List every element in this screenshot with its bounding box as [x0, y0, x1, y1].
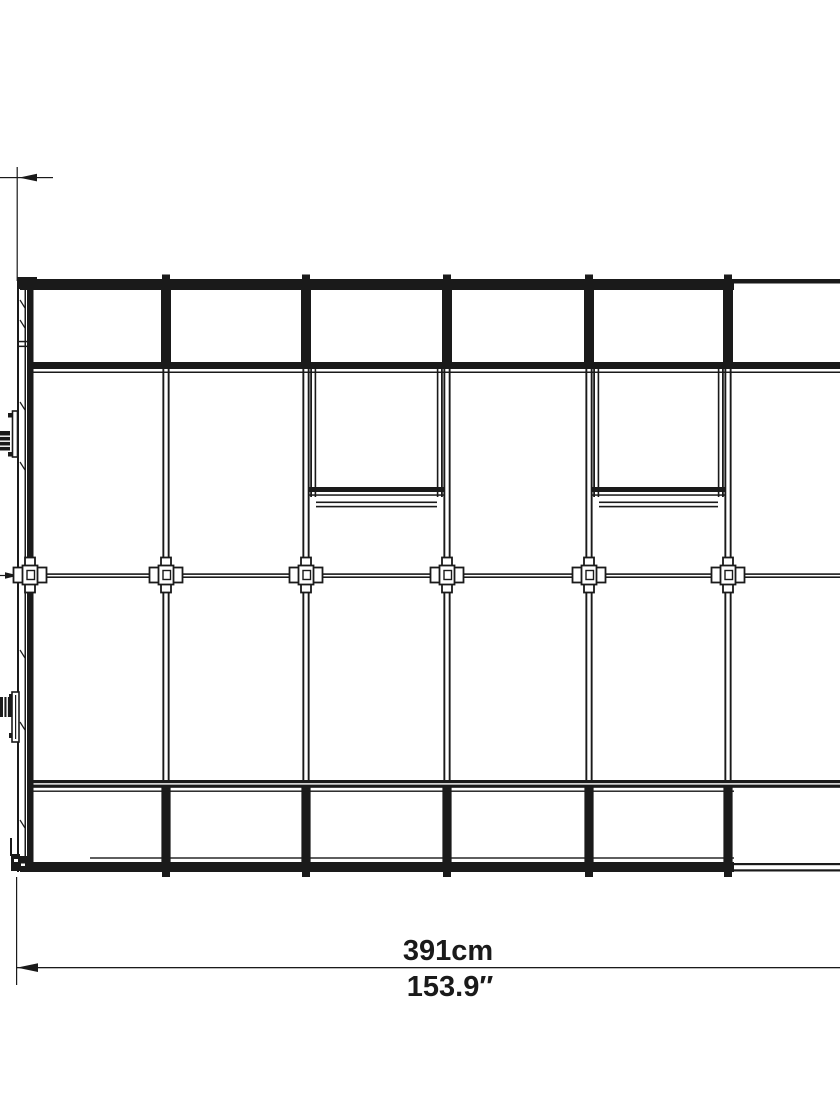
- cross-connector-4-left-flange: [431, 568, 441, 583]
- vent-window-2-bottom-rail: [591, 494, 726, 496]
- wall-tick: [20, 402, 25, 410]
- post-4-top: [584, 282, 594, 369]
- post-2-top: [301, 282, 311, 369]
- cross-connector-1-right-flange: [37, 568, 47, 583]
- foot-base: [11, 856, 29, 871]
- cross-connector-3-left-flange: [290, 568, 300, 583]
- handle-knob: [0, 697, 12, 717]
- vent-window-2-sill-line: [599, 506, 718, 508]
- wall-tick: [20, 320, 25, 328]
- post-4-bottom: [584, 787, 593, 862]
- post-1-top: [161, 282, 171, 369]
- top-beam-main: [20, 279, 734, 290]
- cross-connector-5-left-flange: [573, 568, 583, 583]
- cross-connector-2-right-flange: [173, 568, 183, 583]
- arrowhead-icon: [19, 174, 37, 182]
- vent-window-1-bottom-rail: [308, 487, 445, 492]
- top-left-dimension: [0, 167, 53, 281]
- base-rail-line: [33, 780, 840, 783]
- wall-tick: [20, 722, 25, 730]
- vent-window-2-frame: [718, 369, 720, 497]
- bottom-rail: [20, 857, 840, 877]
- cross-connector-6-left-flange: [712, 568, 722, 583]
- extension-line: [17, 167, 18, 281]
- vent-window-2-bottom-rail: [591, 487, 726, 492]
- cross-connector-2-body: [159, 566, 174, 585]
- cross-connector-6-body: [721, 566, 736, 585]
- knob-rib: [0, 436, 10, 437]
- wall-foot-bracket: [10, 838, 29, 871]
- base-rail-underline: [33, 791, 734, 792]
- cross-connector-3-right-flange: [313, 568, 323, 583]
- top-beam-right-continuation: [728, 279, 840, 284]
- vent-window-2-sill-line: [599, 502, 718, 504]
- vent-window-2-frame: [722, 369, 724, 497]
- wall-tick: [20, 300, 25, 308]
- wall-tick: [20, 462, 25, 470]
- vent-window-1-frame: [441, 369, 443, 497]
- knob-rib: [0, 446, 10, 447]
- foot-gap: [14, 859, 18, 862]
- bottom-rail-right-continuation: [728, 863, 840, 865]
- hinge-plate: [13, 411, 18, 457]
- technical-drawing-page: 391cm 153.9″: [0, 0, 840, 1120]
- wall-joint-line: [19, 346, 33, 348]
- vent-window-1-bottom-rail: [308, 494, 445, 496]
- vent-window-1-sill-line: [316, 506, 437, 508]
- post-foot: [302, 872, 310, 877]
- foot-gap: [21, 864, 25, 867]
- cross-connector-6-right-flange: [735, 568, 745, 583]
- dimension-imperial-label: 153.9″: [407, 971, 494, 1003]
- post-3-bottom: [442, 787, 451, 862]
- post-foot: [443, 872, 451, 877]
- bottom-rail-right-continuation: [728, 869, 840, 871]
- cross-connector-4-right-flange: [454, 568, 464, 583]
- cross-connector-5-right-flange: [596, 568, 606, 583]
- wall-joint-line: [19, 341, 33, 343]
- arrowhead-icon: [17, 963, 38, 972]
- eave-rail-main: [33, 362, 840, 369]
- post-foot: [724, 872, 732, 877]
- dimension-line: [16, 967, 840, 968]
- vent-windows: [308, 369, 726, 507]
- cross-connector-1-body: [23, 566, 38, 585]
- door-hinge: [0, 411, 18, 457]
- post-foot: [585, 872, 593, 877]
- bottom-rail-overline: [90, 857, 734, 858]
- bottom-dimension: 391cm 153.9″: [16, 877, 840, 1003]
- knob-rib: [7, 697, 8, 717]
- greenhouse-wall-elevation-drawing: 391cm 153.9″: [0, 0, 840, 1120]
- cross-connector-5-body: [582, 566, 597, 585]
- cross-connector-3-body: [299, 566, 314, 585]
- vent-window-2-frame: [598, 369, 600, 497]
- cross-connector-1-left-flange: [14, 568, 24, 583]
- vent-window-2-frame: [593, 369, 595, 497]
- vent-window-1-frame: [310, 369, 312, 497]
- post-2-bottom: [301, 787, 310, 862]
- dimension-metric-label: 391cm: [403, 935, 493, 967]
- top-beam: [20, 275, 840, 291]
- post-5-bottom: [723, 787, 732, 862]
- door-handle: [0, 692, 19, 742]
- vent-window-1-sill-line: [316, 502, 437, 504]
- bottom-rail-main: [20, 862, 734, 872]
- wall-tick: [20, 820, 25, 828]
- base-rail: [33, 780, 840, 792]
- wall-tick: [20, 650, 25, 658]
- extension-line: [16, 877, 17, 985]
- foot-hook: [10, 838, 12, 856]
- vent-window-1-frame: [315, 369, 317, 497]
- foot-hook: [10, 854, 20, 856]
- cross-connector-4-body: [440, 566, 455, 585]
- cross-connectors: [14, 558, 745, 593]
- post-foot: [162, 872, 170, 877]
- base-rail-line: [33, 785, 840, 788]
- handle-plate-line: [15, 695, 16, 739]
- post-1-bottom: [161, 787, 170, 862]
- vent-window-1-frame: [437, 369, 439, 497]
- knob-rib: [0, 441, 10, 442]
- post-5-top: [723, 282, 733, 369]
- knob-rib: [3, 697, 4, 717]
- cross-connector-2-left-flange: [150, 568, 160, 583]
- post-3-top: [442, 282, 452, 369]
